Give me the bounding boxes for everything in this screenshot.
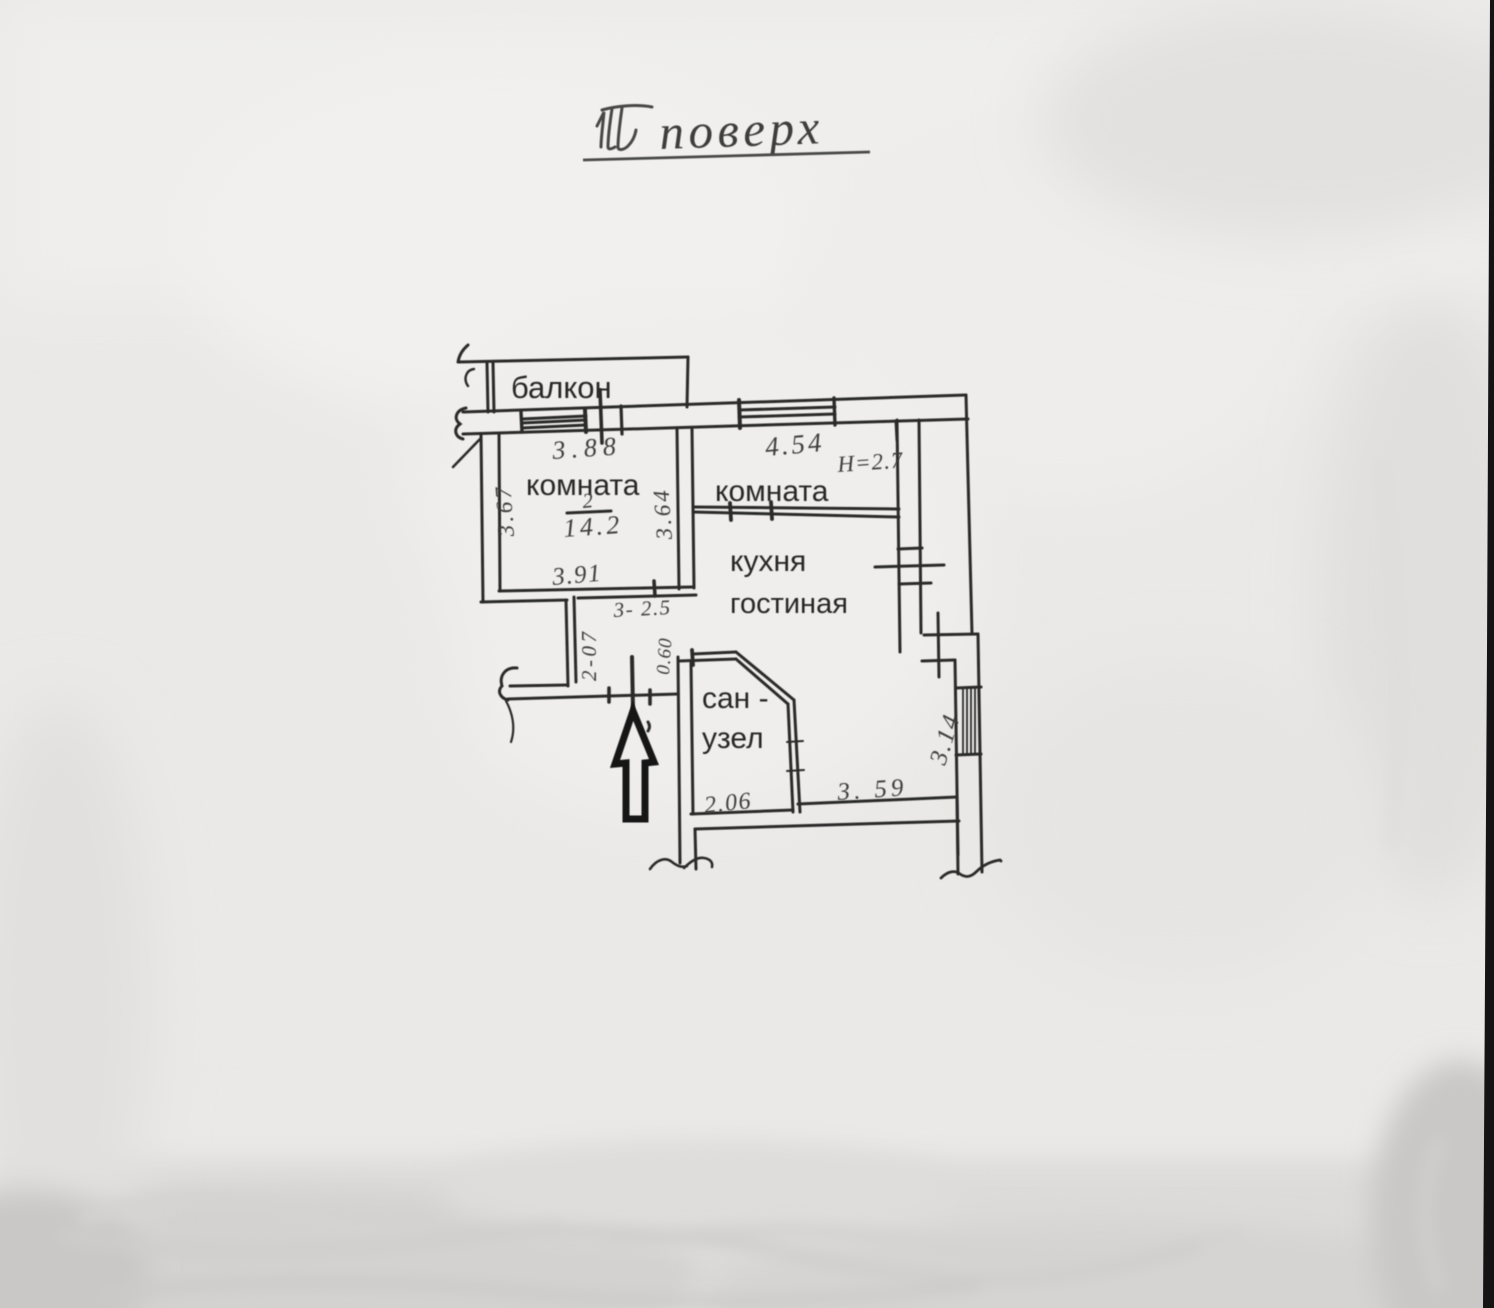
svg-text:поверх: поверх — [658, 99, 824, 160]
svg-text:узел: узел — [702, 722, 764, 755]
svg-text:3.67: 3.67 — [490, 484, 519, 539]
svg-text:балкон: балкон — [511, 370, 612, 405]
svg-text:2-07: 2-07 — [577, 629, 601, 682]
svg-text:14.2: 14.2 — [562, 510, 623, 543]
svg-text:кухня: кухня — [730, 545, 806, 578]
svg-text:3.88: 3.88 — [550, 431, 622, 465]
svg-text:гостиная: гостиная — [730, 588, 848, 620]
svg-text:3. 59: 3. 59 — [836, 774, 909, 806]
svg-text:2.06: 2.06 — [703, 788, 753, 819]
svg-text:3.64: 3.64 — [648, 487, 677, 542]
svg-text:сан -: сан - — [702, 682, 769, 715]
svg-text:4.54: 4.54 — [764, 427, 826, 462]
svg-text:3- 2.5: 3- 2.5 — [612, 595, 672, 622]
svg-text:3.91: 3.91 — [550, 560, 603, 591]
svg-text:комната: комната — [715, 475, 829, 508]
svg-text:0.60: 0.60 — [653, 637, 677, 676]
svg-text:Н=2.7: Н=2.7 — [836, 447, 905, 477]
